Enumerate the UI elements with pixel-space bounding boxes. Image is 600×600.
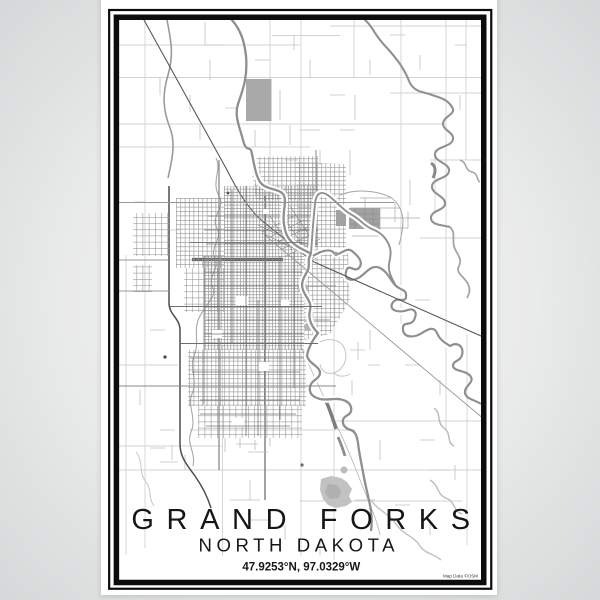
svg-text:Map Data ©OSM: Map Data ©OSM bbox=[443, 573, 478, 579]
svg-text:GRAND FORKS: GRAND FORKS bbox=[131, 504, 482, 536]
svg-text:NORTH DAKOTA: NORTH DAKOTA bbox=[198, 534, 399, 555]
svg-text:47.9253°N, 97.0329°W: 47.9253°N, 97.0329°W bbox=[242, 561, 360, 573]
